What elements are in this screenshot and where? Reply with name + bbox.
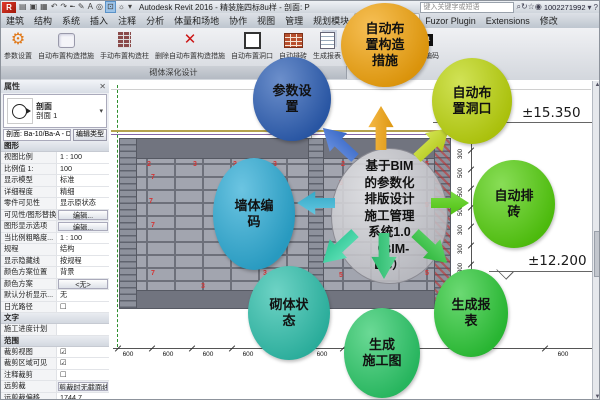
bubble-label: 自动布 置洞口 bbox=[452, 85, 491, 117]
brick-number: 7 bbox=[149, 198, 153, 205]
brick-number: 2 bbox=[147, 161, 151, 168]
level-symbol-2 bbox=[496, 262, 513, 279]
vertical-scrollbar[interactable]: ▲ ▼ bbox=[592, 81, 600, 400]
brick-number: 7 bbox=[151, 270, 155, 277]
dimension-value: 600 bbox=[317, 351, 328, 358]
bubble-measures: 自动布 置构造 措施 bbox=[341, 3, 429, 87]
bubble-label: 自动排 砖 bbox=[494, 188, 533, 220]
grid-line-green bbox=[117, 85, 118, 347]
reference-line bbox=[111, 89, 591, 90]
brick-number: 3 bbox=[193, 161, 197, 168]
construction-column-left bbox=[119, 138, 137, 309]
bubble-state: 砌体状 态 bbox=[248, 266, 330, 360]
level-value-1: ±15.350 bbox=[522, 105, 581, 121]
scrollbar-thumb[interactable] bbox=[594, 231, 600, 277]
diagram-center-label: 基于BIM 的参数化 排版设计 施工管理 系统1.0 （BIM- DC） bbox=[364, 158, 414, 274]
brick-number: 3 bbox=[201, 283, 205, 290]
bubble-label: 墙体编 码 bbox=[234, 198, 273, 230]
dimension-value: 600 bbox=[558, 351, 569, 358]
dimension-value: 600 bbox=[123, 351, 134, 358]
bubble-shopdwg: 生成 施工图 bbox=[344, 308, 420, 398]
bubble-label: 自动布 置构造 措施 bbox=[365, 21, 404, 69]
bubble-wallcode: 墙体编 码 bbox=[213, 158, 295, 270]
dimension-value: 300 bbox=[458, 149, 464, 159]
bubble-label: 参数设 置 bbox=[272, 83, 311, 115]
scroll-down-icon[interactable]: ▼ bbox=[593, 393, 600, 400]
scroll-up-icon[interactable]: ▲ bbox=[593, 81, 600, 89]
brick-number: 5 bbox=[339, 272, 343, 279]
bubble-openings: 自动布 置洞口 bbox=[432, 58, 512, 144]
revit-window: R ▤▣▦↶↷╾✎A◎⊡☼▾ Autodesk Revit 2016 - 精装施… bbox=[0, 0, 600, 400]
dimension-value: 600 bbox=[163, 351, 174, 358]
brick-number: 7 bbox=[151, 222, 155, 229]
dimension-value: 300 bbox=[458, 225, 464, 235]
dimension-value: 300 bbox=[458, 244, 464, 254]
dimension-value: 500 bbox=[458, 168, 464, 178]
bubble-label: 生成报 表 bbox=[451, 297, 490, 329]
level-value-2: ±12.200 bbox=[528, 253, 587, 269]
bubble-label: 生成 施工图 bbox=[362, 337, 401, 369]
dimension-value: 600 bbox=[243, 351, 254, 358]
dimension-value: 600 bbox=[203, 351, 214, 358]
dimension-value: 500 bbox=[458, 187, 464, 197]
bubble-label: 砌体状 态 bbox=[269, 297, 308, 329]
bubble-report: 生成报 表 bbox=[434, 269, 508, 357]
bubble-param: 参数设 置 bbox=[253, 57, 331, 141]
bubble-autobrick: 自动排 砖 bbox=[473, 160, 555, 248]
brick-number: 7 bbox=[151, 174, 155, 181]
brick-number: 2 bbox=[341, 161, 345, 168]
brick-number: 5 bbox=[425, 270, 429, 277]
